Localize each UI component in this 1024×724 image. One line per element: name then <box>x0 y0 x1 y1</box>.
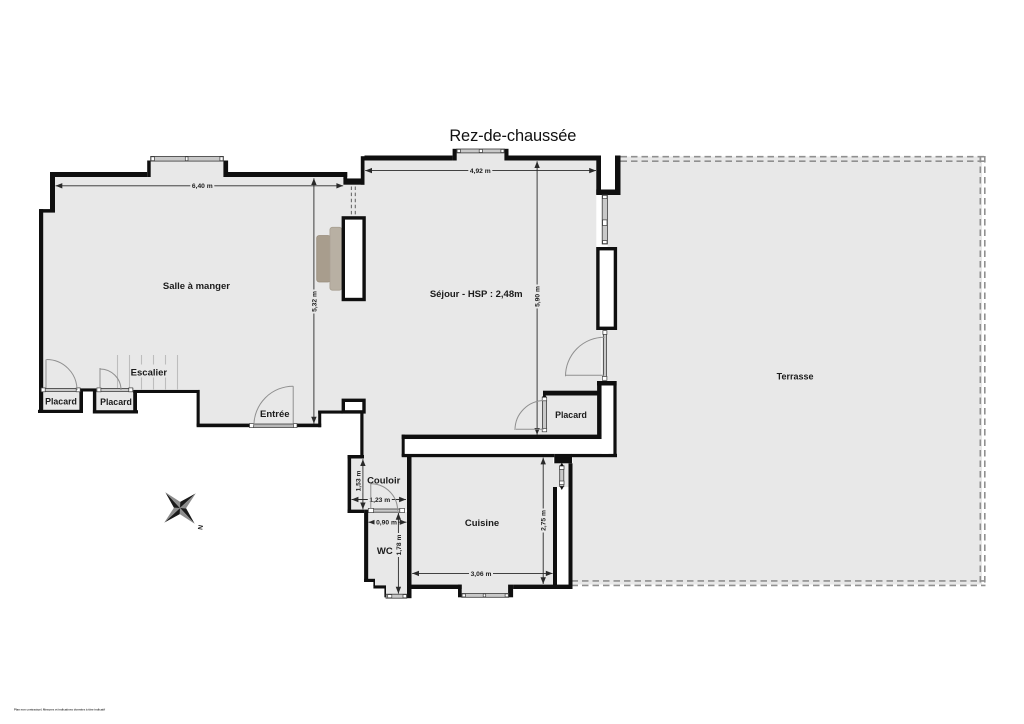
svg-text:5,32 m: 5,32 m <box>311 291 318 312</box>
svg-text:4,92 m: 4,92 m <box>470 168 491 175</box>
svg-text:Cuisine: Cuisine <box>465 518 499 529</box>
svg-text:2,75 m: 2,75 m <box>541 510 548 531</box>
svg-text:Entrée: Entrée <box>260 409 290 420</box>
svg-text:Placard: Placard <box>100 397 132 407</box>
svg-text:1,78 m: 1,78 m <box>396 535 403 556</box>
svg-text:5,90 m: 5,90 m <box>535 286 542 307</box>
svg-text:1,53 m: 1,53 m <box>356 471 363 492</box>
svg-text:Escalier: Escalier <box>131 368 168 379</box>
svg-text:Couloir: Couloir <box>367 476 401 487</box>
svg-text:Placard: Placard <box>45 396 77 406</box>
svg-text:N: N <box>196 524 204 530</box>
svg-text:WC: WC <box>377 546 393 557</box>
svg-text:1,23 m: 1,23 m <box>369 497 390 504</box>
svg-text:0,90 m: 0,90 m <box>376 520 397 527</box>
svg-text:Salle à manger: Salle à manger <box>163 281 230 292</box>
svg-text:Séjour - HSP : 2,48m: Séjour - HSP : 2,48m <box>430 289 523 300</box>
svg-text:3,06 m: 3,06 m <box>471 571 492 578</box>
svg-text:Placard: Placard <box>555 410 587 420</box>
svg-text:Terrasse: Terrasse <box>777 371 814 381</box>
svg-text:Rez-de-chaussée: Rez-de-chaussée <box>449 127 576 145</box>
svg-text:6,40 m: 6,40 m <box>192 183 213 190</box>
svg-text:Plan non contractuel. Mesures: Plan non contractuel. Mesures et indicat… <box>14 708 105 712</box>
